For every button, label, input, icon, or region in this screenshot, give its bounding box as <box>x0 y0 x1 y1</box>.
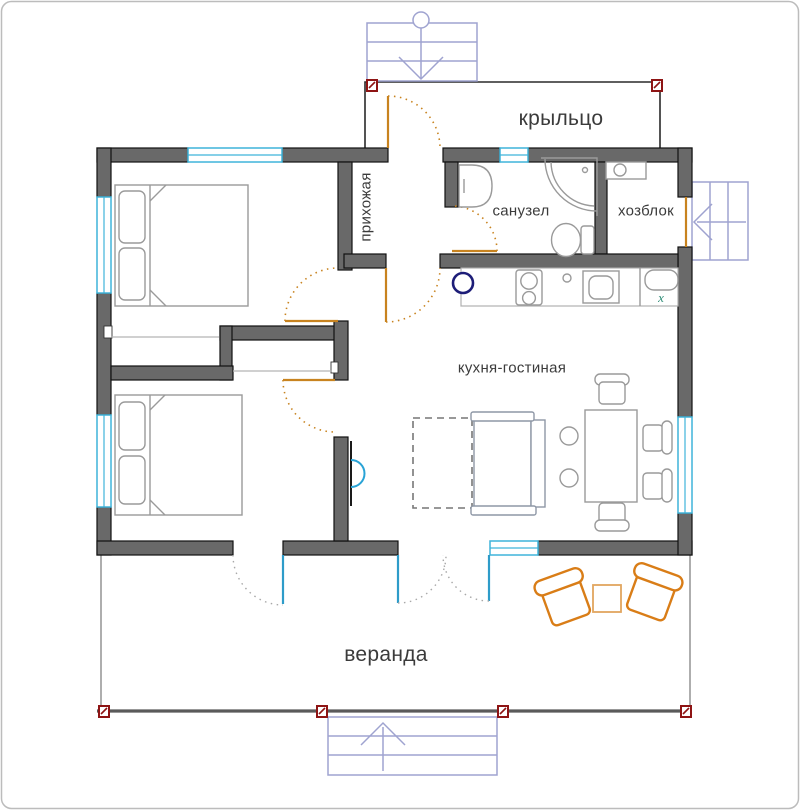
stool <box>560 427 578 445</box>
stair-steps <box>328 736 497 755</box>
bedroom1-door-swing <box>285 268 338 321</box>
pillow <box>119 191 145 243</box>
wall-notch <box>331 362 338 373</box>
bathroom-left-wall <box>445 162 458 207</box>
veranda-door-swing <box>233 555 283 605</box>
shower-tray-outer <box>545 159 597 211</box>
fridge-mark: x <box>657 290 664 305</box>
floor-plan: x <box>0 0 800 810</box>
chair-back <box>662 469 672 502</box>
wall-right-1 <box>678 148 692 197</box>
stairs-start-circle <box>413 12 429 28</box>
sofa-foldout-dashed <box>413 418 472 508</box>
veranda-furniture <box>533 561 685 628</box>
veranda-double-door-right-swing <box>443 555 489 601</box>
toilet-bowl <box>552 224 581 257</box>
chair-seat <box>643 473 663 499</box>
wall-top-3 <box>443 148 500 162</box>
utility-sink <box>606 162 646 179</box>
stair-steps <box>367 42 477 61</box>
wall-left-1 <box>97 148 111 197</box>
stair-steps <box>710 182 728 260</box>
boiler-circle <box>453 273 473 293</box>
stool <box>560 469 578 487</box>
veranda-double-door-left-swing <box>398 555 446 603</box>
dining-table <box>585 410 637 502</box>
top-entry-stairs <box>367 12 477 81</box>
veranda-side-table <box>593 585 621 612</box>
tv-mount-arc <box>351 460 365 487</box>
wall-bottom-3 <box>538 541 692 555</box>
floor-plan-drawing: x <box>0 0 800 810</box>
stairs-outline <box>367 23 477 81</box>
room-label-porch: крыльцо <box>519 107 604 131</box>
veranda-doors <box>233 555 489 605</box>
sofa-armrest <box>471 506 536 515</box>
kitchen-counter: x <box>453 268 678 306</box>
room-label-utility: хозблок <box>618 203 674 220</box>
closet-bottom-wall <box>111 366 233 380</box>
sofa-back <box>531 420 545 507</box>
veranda-armchair <box>621 561 684 623</box>
kitchen-wall <box>440 254 678 268</box>
bed-2 <box>115 395 242 515</box>
shower-drain <box>583 168 588 173</box>
kitchen-door-swing <box>386 268 440 322</box>
wall-right-3 <box>678 513 692 555</box>
chair-back <box>662 421 672 454</box>
wall-left-2 <box>97 293 111 415</box>
wall-top-4 <box>528 148 692 162</box>
sofa <box>413 412 545 515</box>
wall-bottom-2 <box>283 541 398 555</box>
chair-seat <box>599 382 625 404</box>
sofa-armrest <box>471 412 534 421</box>
room-label-kitchen-living: кухня-гостиная <box>458 360 566 377</box>
wall-mounted-tv <box>351 441 365 506</box>
dining-set <box>560 374 672 531</box>
room-label-bathroom: санузел <box>492 203 549 220</box>
stairs-outline <box>692 182 748 260</box>
veranda-outline <box>97 555 692 711</box>
room-label-veranda: веранда <box>344 643 428 667</box>
wall-right-2 <box>678 247 692 417</box>
toilet-tank <box>581 226 594 254</box>
wall-top-2 <box>282 148 388 162</box>
veranda-stairs <box>328 717 497 775</box>
veranda-armchair <box>533 566 596 628</box>
stairs-outline <box>328 717 497 775</box>
wall-notch <box>104 326 112 338</box>
pillow <box>119 402 145 450</box>
pillow <box>119 248 145 300</box>
front-door-swing <box>388 96 440 148</box>
bed-1 <box>115 185 248 306</box>
chair-back <box>595 520 629 531</box>
bedroom2-door-swing <box>283 380 335 432</box>
chair-seat <box>643 425 663 451</box>
room-label-hallway: прихожая <box>358 172 375 241</box>
pillow <box>119 456 145 504</box>
counter-top <box>461 268 678 306</box>
kitchen-wall-stub <box>344 254 386 268</box>
utility-entry-stairs <box>692 182 748 260</box>
bathroom-door-swing <box>452 206 497 251</box>
wall-bottom-1 <box>97 541 233 555</box>
sofa-seat <box>474 420 531 507</box>
porch-outline <box>365 82 660 148</box>
bedroom2-right-wall <box>334 437 348 541</box>
closet-top-wall <box>220 326 342 340</box>
